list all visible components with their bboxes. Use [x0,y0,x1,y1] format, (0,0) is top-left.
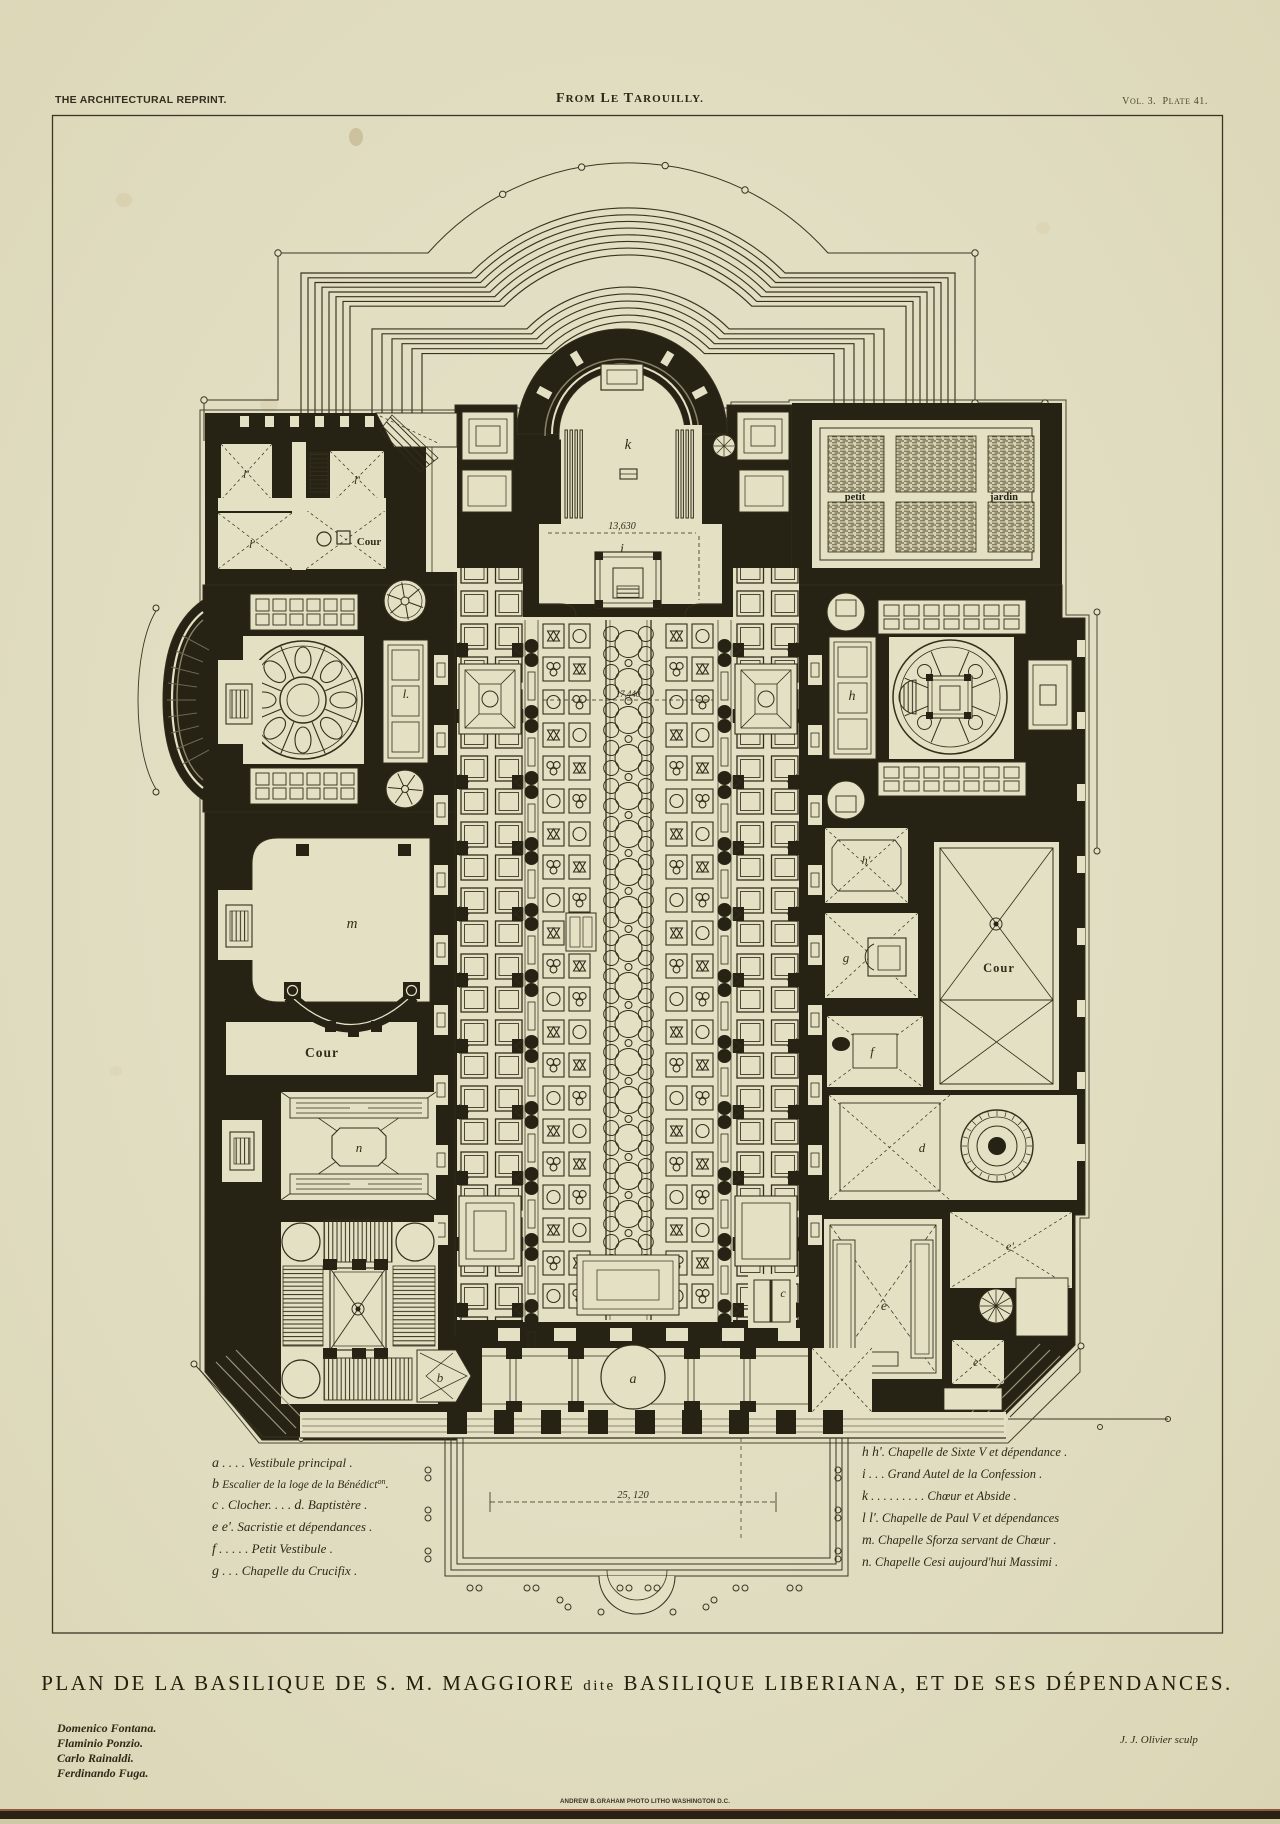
svg-text:25, 120: 25, 120 [617,1490,649,1501]
svg-text:l l'. Chapelle de Paul V et d: l l'. Chapelle de Paul V et dépendances [862,1510,1059,1525]
svg-text:m: m [347,916,358,932]
svg-text:n. Chapelle Cesi aujourd'hui: n. Chapelle Cesi aujourd'hui Massimi . [862,1554,1058,1569]
svg-text:m. Chapelle Sforza servant de: m. Chapelle Sforza servant de Chœur . [862,1532,1056,1547]
svg-text:h': h' [862,853,871,867]
svg-text:n: n [356,1140,363,1155]
svg-text:a . . . . Vestibule principa: a . . . . Vestibule principal . [212,1455,353,1471]
svg-text:FROM LE TAROUILLY.: FROM LE TAROUILLY. [556,91,704,106]
svg-text:e: e [881,1299,887,1314]
svg-text:k . . . . . . . . . Chœur et: k . . . . . . . . . Chœur et Abside . [862,1488,1017,1503]
svg-text:petit: petit [845,492,866,503]
svg-text:Flaminio Ponzio.: Flaminio Ponzio. [56,1736,143,1750]
svg-text:h h'. Chapelle de Sixte V et d: h h'. Chapelle de Sixte V et dépendance … [862,1444,1067,1459]
svg-text:Cour: Cour [357,536,382,548]
svg-text:Cour: Cour [305,1045,339,1060]
svg-text:e': e' [1006,1239,1014,1253]
svg-text:Domenico Fontana.: Domenico Fontana. [56,1721,156,1735]
svg-text:d: d [919,1140,926,1155]
svg-text:Cour: Cour [983,961,1015,975]
svg-text:g . . . Chapelle du Crucifi: g . . . Chapelle du Crucifix . [212,1563,357,1579]
svg-text:13,630: 13,630 [608,521,636,532]
svg-text:Ferdinando Fuga.: Ferdinando Fuga. [56,1766,148,1780]
svg-text:17,440: 17,440 [616,689,641,699]
svg-text:e': e' [973,1355,981,1369]
svg-text:c . Clocher. . . . d. Bapti: c . Clocher. . . . d. Baptistère . [212,1497,367,1513]
svg-text:l': l' [243,467,249,481]
svg-text:l.: l. [403,686,410,701]
svg-text:J. J. Olivier sculp: J. J. Olivier sculp [1120,1734,1198,1746]
svg-text:h: h [849,689,856,704]
svg-text:jardin: jardin [989,492,1018,503]
svg-text:PLAN DE LA BASILIQUE DE S: PLAN DE LA BASILIQUE DE S. M. MAGGIORE d… [41,1671,1233,1695]
svg-text:f . . . . . Petit Vestibule: f . . . . . Petit Vestibule . [212,1541,333,1557]
svg-text:l': l' [354,473,360,487]
svg-text:a: a [630,1372,637,1387]
svg-text:e e'. Sacristie et dépendan: e e'. Sacristie et dépendances . [212,1519,372,1535]
svg-text:g: g [843,950,850,965]
svg-text:Carlo Rainaldi.: Carlo Rainaldi. [57,1751,134,1765]
svg-text:k: k [625,437,632,453]
svg-text:ANDREW B.GRAHAM PHOTO LITHO WA: ANDREW B.GRAHAM PHOTO LITHO WASHINGTON D… [560,1798,730,1805]
svg-text:THE ARCHITECTURAL REPRINT.: THE ARCHITECTURAL REPRINT. [55,94,227,106]
svg-text:VOL. 3. PLATE 41.: VOL. 3. PLATE 41. [1122,96,1208,107]
svg-text:b: b [437,1370,444,1385]
svg-text:b Escalier de la loge de la B: b Escalier de la loge de la Bénédicton. [212,1476,389,1492]
svg-text:c: c [780,1286,786,1300]
svg-text:l': l' [249,537,255,551]
svg-text:i . . . Grand Autel de la Con: i . . . Grand Autel de la Confession . [862,1466,1042,1481]
